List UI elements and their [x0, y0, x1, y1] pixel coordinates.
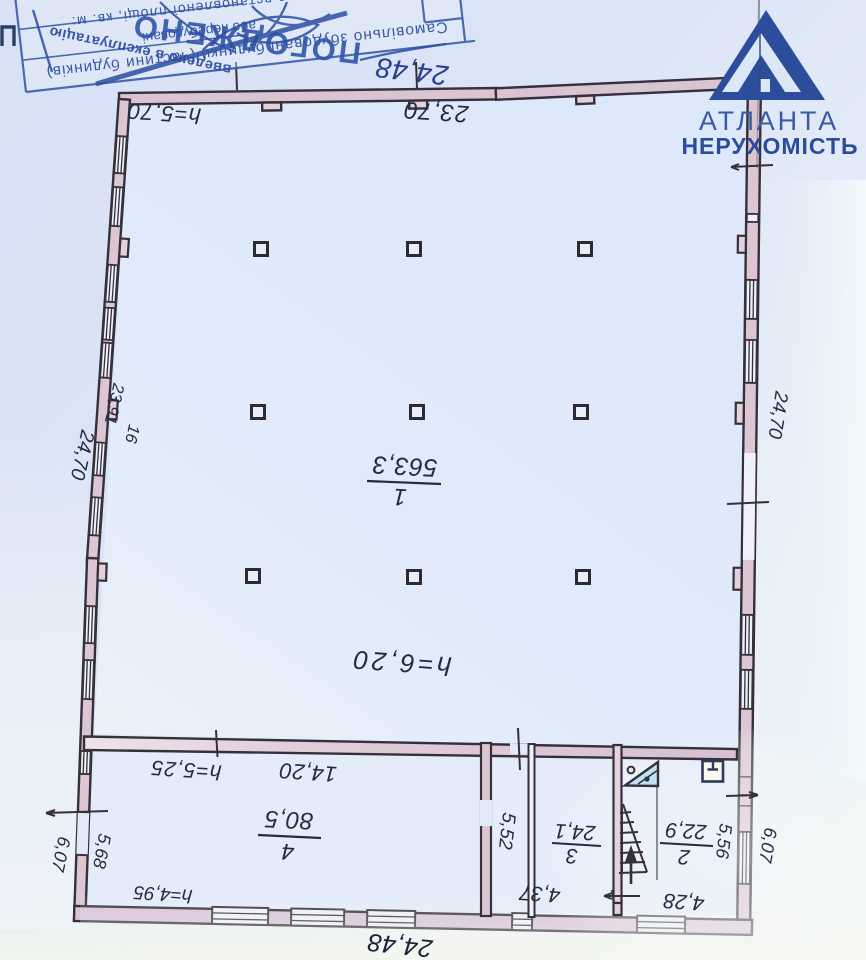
svg-text:h=5,70: h=5,70 — [126, 98, 201, 128]
svg-text:4,37: 4,37 — [518, 881, 562, 907]
svg-text:3: 3 — [565, 844, 578, 868]
svg-text:1: 1 — [393, 483, 408, 511]
svg-text:80,5: 80,5 — [264, 805, 314, 835]
svg-text:АТЛАНТА: АТЛАНТА — [699, 106, 839, 136]
svg-text:22,9: 22,9 — [665, 818, 708, 843]
svg-text:h=4,95: h=4,95 — [133, 881, 193, 906]
svg-text:563,3: 563,3 — [372, 450, 438, 481]
svg-text:4: 4 — [281, 839, 295, 866]
svg-text:2: 2 — [677, 845, 691, 869]
svg-text:НЕРУХОМІСТЬ: НЕРУХОМІСТЬ — [681, 133, 858, 159]
svg-text:14,20: 14,20 — [278, 758, 337, 787]
svg-text:4,28: 4,28 — [663, 889, 706, 915]
svg-text:24,1: 24,1 — [554, 819, 597, 844]
svg-text:23,70: 23,70 — [403, 96, 471, 128]
